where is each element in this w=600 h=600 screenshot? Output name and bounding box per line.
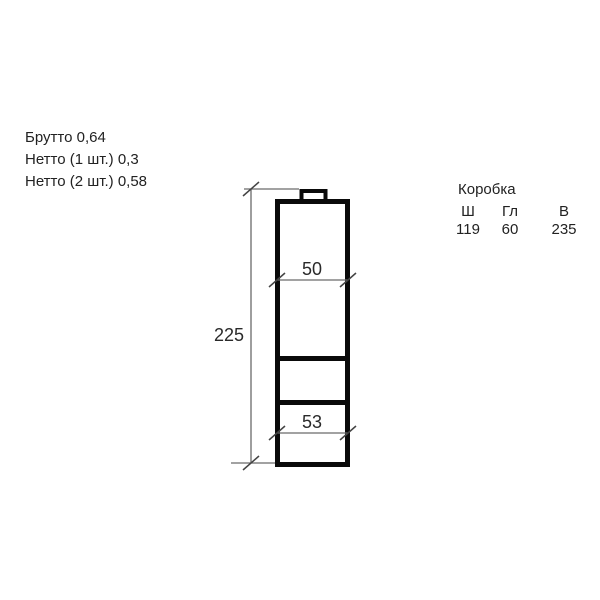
drawing-page: Брутто 0,64 Нетто (1 шт.) 0,3 Нетто (2 ш…: [0, 0, 600, 600]
height-dimension-label: 225: [214, 325, 244, 345]
upper-width-dimension-label: 50: [302, 259, 322, 279]
cabinet-drawing: 225 50 53: [0, 0, 600, 600]
lower-width-dimension-label: 53: [302, 412, 322, 432]
